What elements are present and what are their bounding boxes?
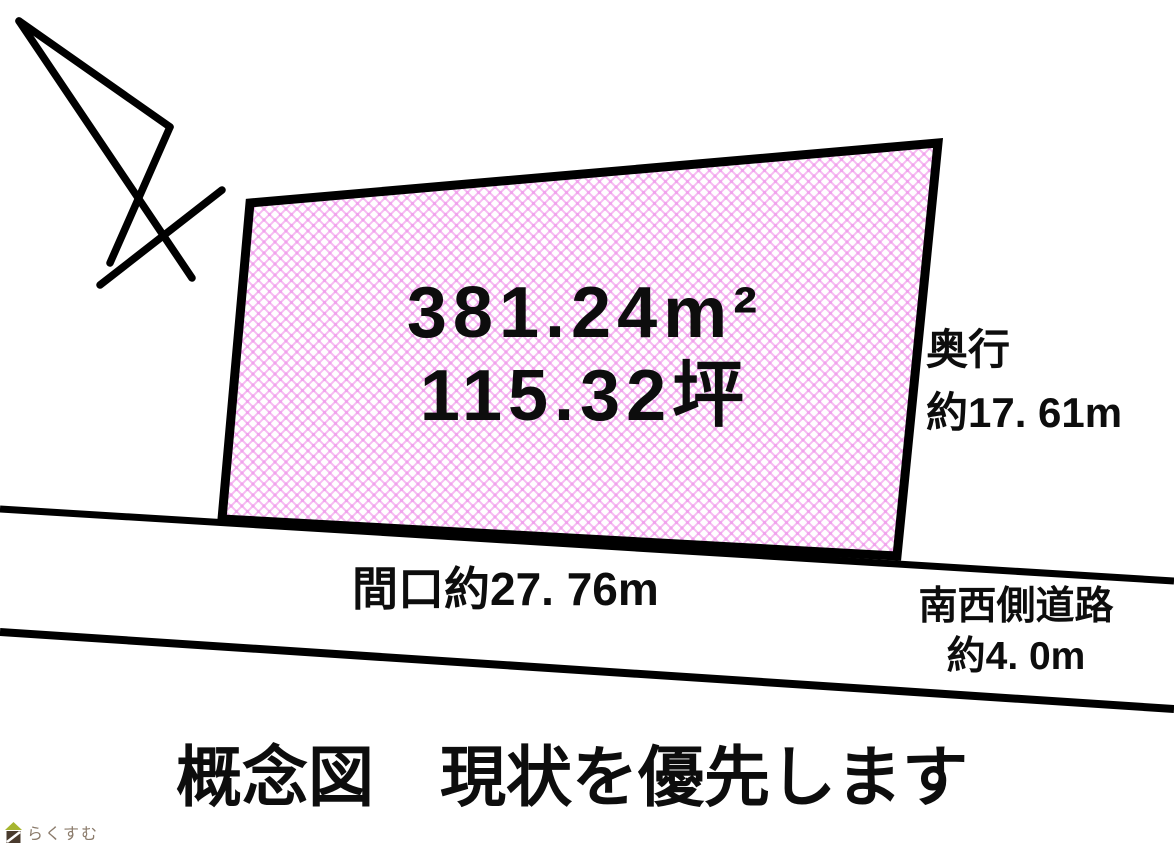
north-arrow-shaft <box>19 21 192 278</box>
depth-title-text: 奥行 <box>926 318 1122 381</box>
depth-value-text: 約17. 61m <box>926 381 1122 444</box>
road-name-text: 南西側道路 <box>918 582 1113 632</box>
road-width-text: 約4. 0m <box>918 632 1113 682</box>
diagram-caption: 概念図 現状を優先します <box>176 743 968 812</box>
land-plot-diagram: 381.24m² 115.32坪 奥行 約17. 61m 間口約27. 76m … <box>0 0 1174 850</box>
house-icon <box>5 822 22 843</box>
house-roof <box>5 822 22 830</box>
road-label: 南西側道路 約4. 0m <box>918 582 1113 682</box>
north-arrow-head-edge <box>19 21 170 127</box>
depth-label: 奥行 約17. 61m <box>926 318 1122 444</box>
parcel-area-label: 381.24m² 115.32坪 <box>407 272 763 438</box>
watermark-text: らくすむ <box>27 820 99 844</box>
watermark: らくすむ <box>5 820 99 844</box>
area-sqm-text: 381.24m² <box>407 272 763 355</box>
north-arrow-head-return <box>110 127 170 263</box>
north-arrow-icon <box>19 21 222 285</box>
frontage-label: 間口約27. 76m <box>352 553 659 619</box>
area-tsubo-text: 115.32坪 <box>407 355 763 438</box>
